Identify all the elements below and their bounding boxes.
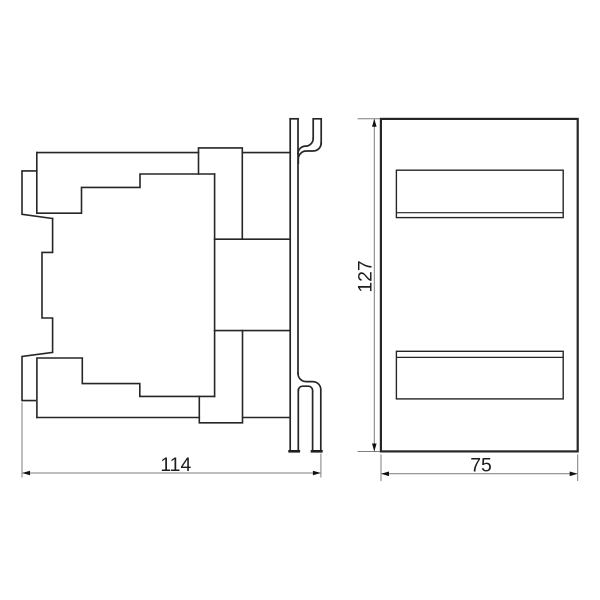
svg-text:127: 127 [354, 260, 376, 292]
svg-text:75: 75 [470, 455, 492, 477]
svg-text:114: 114 [160, 454, 191, 476]
